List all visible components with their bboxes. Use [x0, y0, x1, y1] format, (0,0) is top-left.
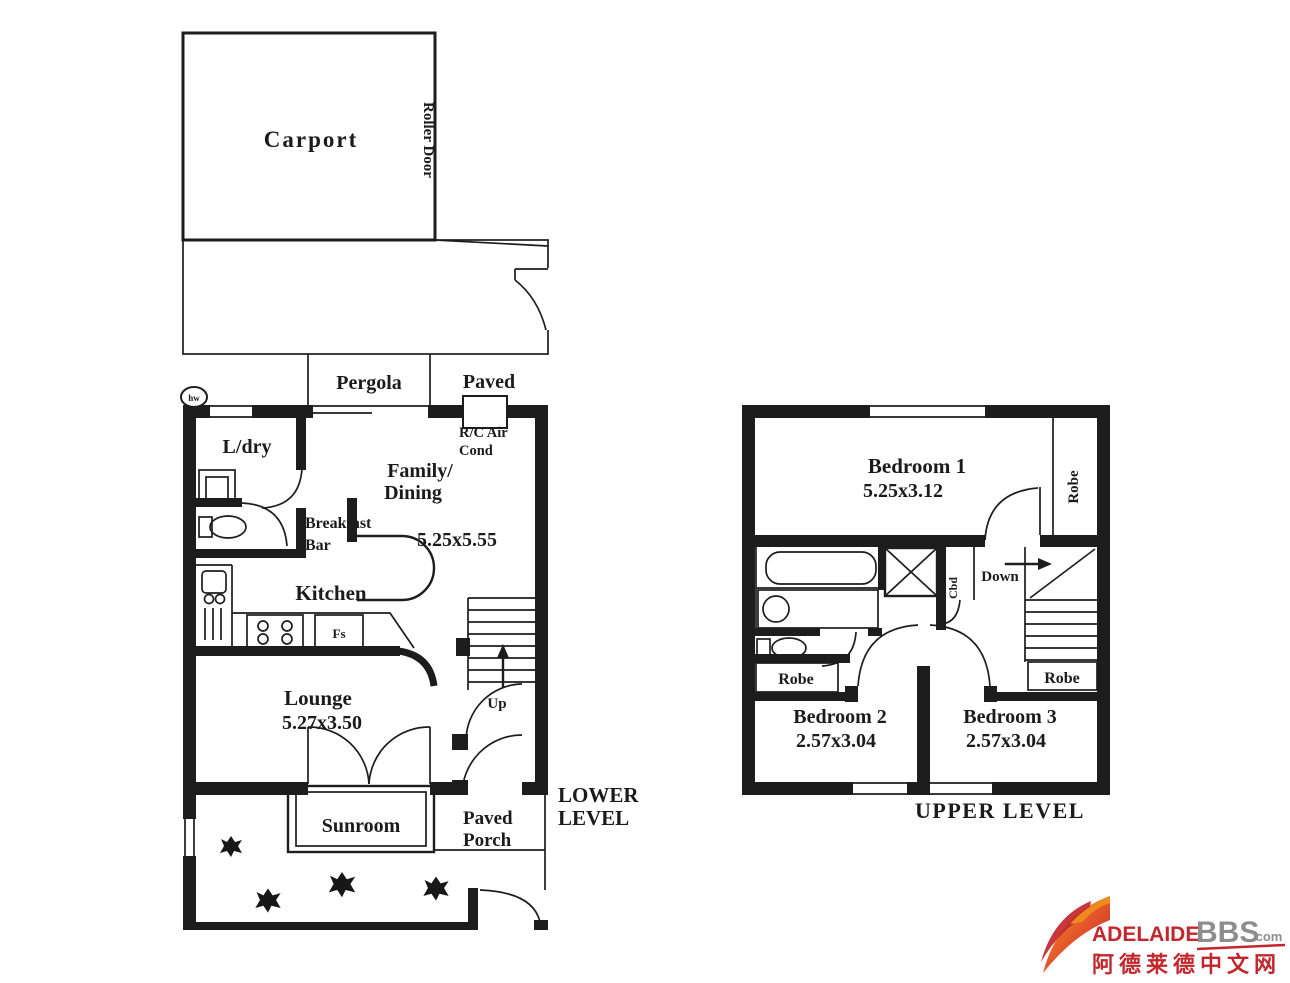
basin-icon	[763, 596, 789, 622]
rc-air-label-2: Cond	[459, 443, 493, 459]
logo-adelaide: ADELAIDE	[1092, 923, 1199, 946]
adelaidebbs-logo: ADELAIDE BBS .com 阿德莱德中文网	[1041, 896, 1285, 977]
lower-title-2: LEVEL	[558, 806, 629, 830]
bedroom1-label: Bedroom 1	[868, 454, 966, 478]
family-dining-room: Family/ Dining 5.25x5.55	[384, 460, 497, 551]
logo-bbs: BBS	[1196, 916, 1259, 949]
paved-label: Paved	[463, 371, 515, 393]
family-label-1: Family/	[387, 460, 453, 482]
plant-icon	[255, 889, 280, 913]
lounge: Lounge 5.27x3.50	[282, 686, 362, 734]
bathtub-icon	[766, 552, 876, 584]
down-label: Down	[981, 569, 1019, 585]
wc-door-arc	[242, 503, 287, 546]
fs-label: Fs	[333, 626, 346, 641]
lounge-dim: 5.27x3.50	[282, 712, 362, 734]
bedroom3-label: Bedroom 3	[963, 706, 1057, 728]
up-arrow-icon	[497, 644, 509, 686]
plant-icon	[220, 836, 242, 857]
garden-gate-arc	[480, 890, 540, 922]
french-doors	[308, 727, 430, 784]
breakfast-label-1: Breakfast	[305, 515, 372, 532]
bedroom3-dim: 2.57x3.04	[966, 730, 1046, 752]
gate-arc	[515, 280, 546, 330]
bed1-door-arc	[985, 488, 1038, 540]
stove-icon	[247, 615, 303, 648]
plant-icon	[329, 872, 355, 897]
porch-label-2: Porch	[463, 830, 512, 851]
robe-right-label: Robe	[1044, 670, 1080, 687]
hw-unit: hw	[181, 387, 207, 407]
sink-icon	[196, 565, 232, 648]
logo-chinese: 阿德莱德中文网	[1092, 952, 1281, 977]
upper-level-title: UPPER LEVEL	[915, 798, 1085, 823]
driveway-outline	[183, 240, 548, 354]
ldry-door-arc	[262, 468, 302, 508]
breakfast-label-2: Bar	[305, 537, 331, 554]
roller-door-label: Roller Door	[420, 102, 436, 178]
lounge-label: Lounge	[284, 686, 352, 710]
lower-level-plan: Carport Roller Door Pergola Paved	[181, 33, 639, 930]
stairs-lower: Up	[456, 598, 535, 712]
lower-level-title: LOWER LEVEL	[558, 783, 639, 830]
robe-left-label: Robe	[778, 671, 814, 688]
carport-label: Carport	[264, 127, 358, 152]
bedroom1-dim: 5.25x3.12	[863, 480, 943, 502]
bathroom: Cbd	[742, 547, 974, 666]
lower-title-1: LOWER	[558, 783, 639, 807]
fridge-space: Fs	[315, 615, 363, 648]
laundry-room: L/dry	[196, 418, 357, 558]
up-label: Up	[487, 696, 506, 712]
stairs-upper: Down	[981, 547, 1097, 662]
cbd-label: Cbd	[946, 577, 960, 599]
bedroom2-dim: 2.57x3.04	[796, 730, 876, 752]
kitchen: Kitchen	[196, 565, 434, 686]
robe-left: Robe	[742, 654, 858, 702]
kitchen-wall-arc	[398, 651, 434, 686]
upper-level-plan: Bedroom 1 5.25x3.12 Robe	[742, 403, 1110, 823]
ldry-label: L/dry	[223, 436, 272, 458]
carport-room: Carport Roller Door	[183, 33, 436, 240]
paved-porch: Paved Porch	[434, 795, 545, 890]
toilet-icon-lower	[199, 516, 246, 538]
bedroom1: Bedroom 1 5.25x3.12 Robe	[742, 418, 1110, 547]
family-dim: 5.25x5.55	[417, 529, 497, 551]
hw-label: hw	[188, 393, 200, 403]
logo-com: .com	[1252, 929, 1282, 944]
rc-air-label-1: R/C Air	[459, 425, 508, 441]
bedroom3: Bedroom 3 2.57x3.04	[963, 706, 1057, 752]
driveway	[183, 240, 553, 354]
kitchen-label: Kitchen	[295, 581, 366, 605]
bedroom2-label: Bedroom 2	[793, 706, 887, 728]
shower-icon	[885, 548, 937, 596]
floor-plan-page: Carport Roller Door Pergola Paved	[0, 0, 1290, 983]
robe-top-label: Robe	[1066, 470, 1082, 504]
pergola-label: Pergola	[336, 372, 402, 394]
floor-plan-canvas: Carport Roller Door Pergola Paved	[0, 0, 1290, 983]
ac-unit: R/C Air Cond	[459, 396, 508, 459]
porch-label-1: Paved	[463, 808, 513, 829]
family-label-2: Dining	[384, 482, 442, 504]
sunroom-label: Sunroom	[322, 815, 401, 837]
plant-icon	[423, 877, 448, 901]
robe-right: Robe	[984, 662, 1110, 702]
